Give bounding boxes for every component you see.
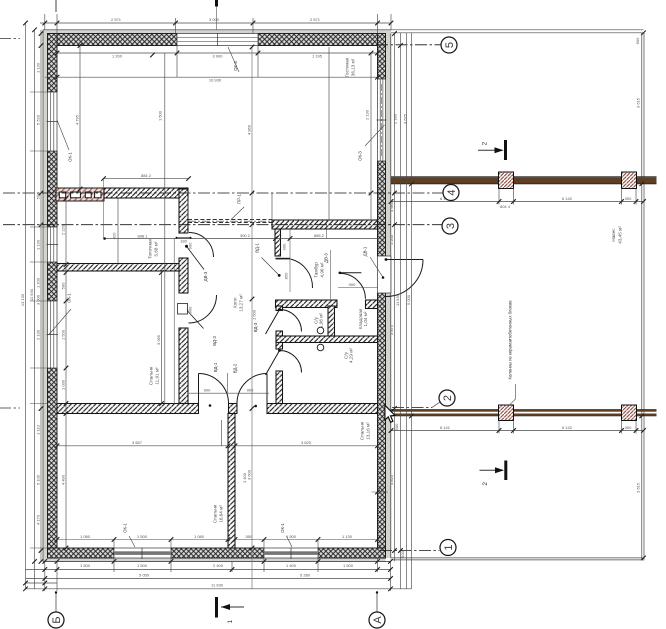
svg-text:Спальня: Спальня (360, 421, 365, 440)
svg-text:1 400: 1 400 (242, 472, 247, 483)
svg-text:5: 5 (444, 42, 456, 48)
svg-text:500: 500 (400, 550, 405, 557)
svg-text:4 820: 4 820 (389, 474, 394, 485)
svg-text:11,91 м²: 11,91 м² (155, 367, 160, 385)
svg-text:898 1: 898 1 (137, 233, 148, 238)
svg-text:3 615: 3 615 (636, 482, 641, 493)
svg-text:2: 2 (482, 141, 489, 145)
svg-text:3 657: 3 657 (132, 440, 143, 445)
svg-text:900: 900 (349, 282, 356, 287)
svg-text:5 000: 5 000 (406, 294, 411, 305)
svg-text:600: 600 (635, 37, 640, 44)
svg-text:Спальня: Спальня (213, 504, 218, 523)
svg-text:А: А (372, 616, 384, 624)
svg-text:43,45 м²: 43,45 м² (618, 226, 623, 244)
svg-text:5 280: 5 280 (300, 572, 311, 577)
svg-text:2 220: 2 220 (61, 224, 66, 235)
svg-text:550: 550 (246, 534, 253, 539)
svg-text:ДВ-3: ДВ-3 (203, 271, 208, 281)
svg-text:13,16 м²: 13,16 м² (366, 422, 371, 440)
svg-text:3: 3 (445, 223, 457, 229)
svg-text:36,13 м²: 36,13 м² (351, 58, 356, 76)
svg-text:Гостиная: Гостиная (345, 57, 350, 77)
svg-text:6 142: 6 142 (562, 425, 573, 430)
svg-text:1 400: 1 400 (286, 563, 297, 568)
svg-text:ВД-1: ВД-1 (213, 362, 218, 372)
svg-text:5 520: 5 520 (36, 114, 41, 125)
svg-text:11 930: 11 930 (395, 293, 400, 306)
svg-text:4,29 м²: 4,29 м² (349, 348, 354, 363)
svg-text:4: 4 (446, 189, 458, 195)
svg-text:3 000: 3 000 (209, 17, 220, 22)
svg-text:Спальня: Спальня (149, 366, 154, 385)
svg-text:900: 900 (204, 388, 211, 393)
svg-text:1 500: 1 500 (158, 110, 163, 121)
svg-text:ОК-1: ОК-1 (67, 293, 72, 303)
svg-text:2: 2 (482, 482, 489, 486)
svg-text:1 200: 1 200 (112, 53, 123, 58)
svg-text:884 2: 884 2 (141, 173, 152, 178)
svg-text:1 110: 1 110 (36, 424, 41, 434)
svg-text:Навес: Навес (611, 228, 616, 242)
svg-text:1 080: 1 080 (194, 534, 205, 539)
svg-text:300 2: 300 2 (240, 233, 251, 238)
svg-text:850: 850 (284, 272, 289, 279)
svg-text:6 142: 6 142 (562, 196, 573, 201)
svg-text:1 130: 1 130 (36, 239, 41, 250)
svg-text:1: 1 (443, 544, 455, 550)
svg-text:604 4: 604 4 (500, 204, 511, 209)
svg-text:1 500: 1 500 (61, 329, 66, 340)
svg-text:11 930: 11 930 (29, 288, 34, 301)
svg-text:1 500: 1 500 (252, 309, 257, 320)
svg-text:1 500: 1 500 (343, 563, 354, 568)
svg-text:300: 300 (625, 196, 632, 201)
svg-text:885,2: 885,2 (314, 233, 325, 238)
svg-text:Тамбур: Тамбур (314, 262, 319, 278)
svg-text:3 675: 3 675 (403, 113, 408, 124)
svg-text:4 170: 4 170 (36, 514, 41, 525)
svg-text:ВД-2: ВД-2 (233, 363, 238, 373)
svg-text:1 500: 1 500 (137, 563, 148, 568)
svg-text:10 930: 10 930 (209, 77, 222, 82)
svg-text:5,68 м²: 5,68 м² (154, 241, 159, 256)
svg-text:2 130: 2 130 (365, 109, 370, 120)
svg-text:4 795: 4 795 (75, 114, 80, 125)
svg-text:3 000: 3 000 (212, 53, 223, 58)
svg-text:Колонны из керамзитобетонных б: Колонны из керамзитобетонных блоков (508, 300, 513, 380)
svg-text:4 860: 4 860 (247, 124, 252, 135)
svg-text:Холл: Холл (233, 297, 238, 308)
svg-text:ВД-3: ВД-3 (253, 322, 258, 332)
svg-text:3 065: 3 065 (156, 334, 161, 345)
svg-text:1 195: 1 195 (312, 53, 323, 58)
svg-text:ДВ-3: ДВ-3 (324, 253, 329, 263)
svg-text:1 200: 1 200 (389, 234, 394, 245)
svg-text:13 130: 13 130 (20, 293, 25, 306)
svg-text:1,04 м²: 1,04 м² (363, 311, 368, 326)
svg-text:1 130: 1 130 (36, 62, 41, 73)
svg-text:900: 900 (247, 388, 254, 393)
svg-text:3 000: 3 000 (36, 294, 41, 305)
svg-text:4,96 м²: 4,96 м² (320, 262, 325, 277)
svg-text:Топочная: Топочная (148, 239, 153, 259)
svg-text:1 500: 1 500 (286, 534, 297, 539)
svg-text:2 571: 2 571 (310, 17, 321, 22)
svg-text:2: 2 (442, 395, 454, 401)
svg-text:16,64 м²: 16,64 м² (219, 505, 224, 523)
svg-text:13,27 м²: 13,27 м² (239, 294, 244, 312)
svg-text:300: 300 (625, 425, 632, 430)
svg-text:900: 900 (188, 306, 193, 313)
svg-text:5 100: 5 100 (36, 474, 41, 485)
svg-text:4 490: 4 490 (61, 474, 66, 485)
svg-text:1,96 м²: 1,96 м² (319, 313, 324, 328)
svg-text:ОК-3: ОК-3 (233, 61, 238, 71)
svg-text:900: 900 (282, 243, 287, 250)
svg-text:1 500: 1 500 (137, 534, 148, 539)
svg-text:ДВ-1: ДВ-1 (363, 246, 368, 256)
svg-text:1: 1 (227, 619, 234, 623)
svg-text:2 130: 2 130 (36, 329, 41, 340)
svg-text:ОК-1: ОК-1 (280, 523, 285, 533)
svg-text:2 571: 2 571 (111, 17, 122, 22)
svg-text:180: 180 (180, 238, 187, 243)
svg-text:ОК-3: ОК-3 (358, 151, 363, 161)
svg-text:3 600: 3 600 (247, 469, 252, 480)
svg-text:500: 500 (36, 192, 41, 199)
svg-text:900: 900 (188, 242, 193, 249)
svg-text:5 050: 5 050 (139, 572, 150, 577)
svg-text:3 620: 3 620 (301, 440, 312, 445)
svg-text:1 130: 1 130 (342, 534, 353, 539)
svg-text:1 030: 1 030 (61, 379, 66, 390)
svg-text:500: 500 (394, 423, 399, 430)
svg-text:6 141: 6 141 (440, 425, 451, 430)
svg-text:ПР-1: ПР-1 (237, 194, 242, 204)
svg-text:1 500: 1 500 (80, 563, 91, 568)
svg-text:ОК-1: ОК-1 (68, 152, 73, 162)
svg-text:3 875: 3 875 (389, 324, 394, 335)
svg-text:1 200: 1 200 (36, 277, 41, 288)
svg-text:500: 500 (61, 282, 66, 289)
svg-text:420: 420 (112, 232, 117, 239)
svg-text:3 615: 3 615 (636, 97, 641, 108)
svg-text:ВД-3: ВД-3 (212, 336, 217, 346)
svg-text:2 180: 2 180 (393, 113, 398, 124)
svg-text:ОК-1: ОК-1 (123, 523, 128, 533)
svg-text:ВД-1: ВД-1 (255, 243, 260, 253)
svg-text:Б: Б (51, 616, 63, 623)
svg-text:2 400: 2 400 (213, 563, 224, 568)
svg-text:1 080: 1 080 (80, 534, 91, 539)
svg-text:11 930: 11 930 (211, 583, 224, 588)
